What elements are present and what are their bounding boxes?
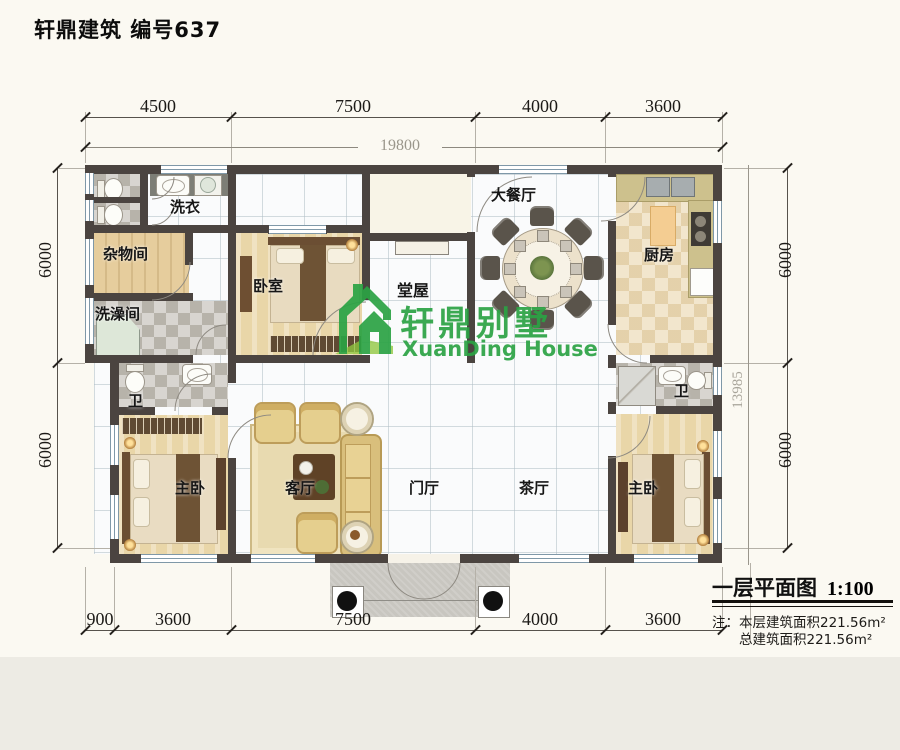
room-label-hall: 堂屋 <box>397 277 429 301</box>
dim-top-0: 4500 <box>118 96 198 117</box>
dim-left-0: 6000 <box>35 230 55 290</box>
room-label-master-right: 主卧 <box>628 477 658 498</box>
door-arc <box>424 563 460 599</box>
dim-top-3: 3600 <box>623 96 703 117</box>
door-arc <box>608 416 650 458</box>
dim-top-total: 19800 <box>358 137 442 155</box>
room-label-wc-left: 卫 <box>128 390 143 411</box>
door-arc <box>601 177 645 221</box>
caption-scale: 1:100 <box>827 578 874 601</box>
caption-rule <box>712 600 893 603</box>
dimension-line-left <box>57 168 58 548</box>
room-label-laundry: 洗衣 <box>170 196 200 217</box>
note-label: 注： <box>712 615 739 631</box>
dim-left-1: 6000 <box>35 420 55 480</box>
door-arc <box>175 374 212 411</box>
dim-bottom-1: 3600 <box>133 609 213 630</box>
dim-top-2: 4000 <box>500 96 580 117</box>
dimension-line-bottom <box>85 630 722 631</box>
room-label-kitchen: 厨房 <box>644 244 674 265</box>
floor-plan-sheet: 轩鼎建筑 编号637 <box>0 0 900 750</box>
dim-right-1: 6000 <box>775 420 795 480</box>
door-arc <box>228 415 271 458</box>
door-arc <box>152 262 190 300</box>
room-label-wc-right: 卫 <box>674 380 689 401</box>
room-label-tea-hall: 茶厅 <box>519 477 549 498</box>
dim-top-1: 7500 <box>313 96 393 117</box>
dimension-line-right <box>787 168 788 548</box>
dim-bottom-0: 900 <box>60 609 140 630</box>
caption-title: 一层平面图 <box>712 572 817 602</box>
door-arc <box>388 563 424 599</box>
dim-bottom-4: 3600 <box>623 609 703 630</box>
door-arc <box>608 324 647 363</box>
sheet-title: 轩鼎建筑 编号637 <box>34 14 221 44</box>
caption-rule-thin <box>712 606 893 607</box>
caption-row: 一层平面图 1:100 <box>712 572 874 602</box>
room-label-living: 客厅 <box>285 477 315 498</box>
door-arc <box>196 325 226 355</box>
dimension-line-top <box>85 117 722 118</box>
dim-right-0: 6000 <box>775 230 795 290</box>
room-label-bedroom: 卧室 <box>253 275 283 296</box>
room-label-shower-room: 洗澡间 <box>95 303 140 324</box>
dim-bottom-3: 4000 <box>500 609 580 630</box>
room-label-dining: 大餐厅 <box>491 184 536 205</box>
xuanding-logo-icon <box>333 276 395 356</box>
watermark-en: XuanDing House <box>402 337 598 361</box>
dim-bottom-2: 7500 <box>313 609 393 630</box>
room-label-master-left: 主卧 <box>175 477 205 498</box>
room-label-foyer: 门厅 <box>409 477 439 498</box>
caption-note-2: 总建筑面积221.56m² <box>739 628 872 648</box>
room-label-storage: 杂物间 <box>103 243 148 264</box>
dim-right-overall: 13985 <box>730 355 750 425</box>
